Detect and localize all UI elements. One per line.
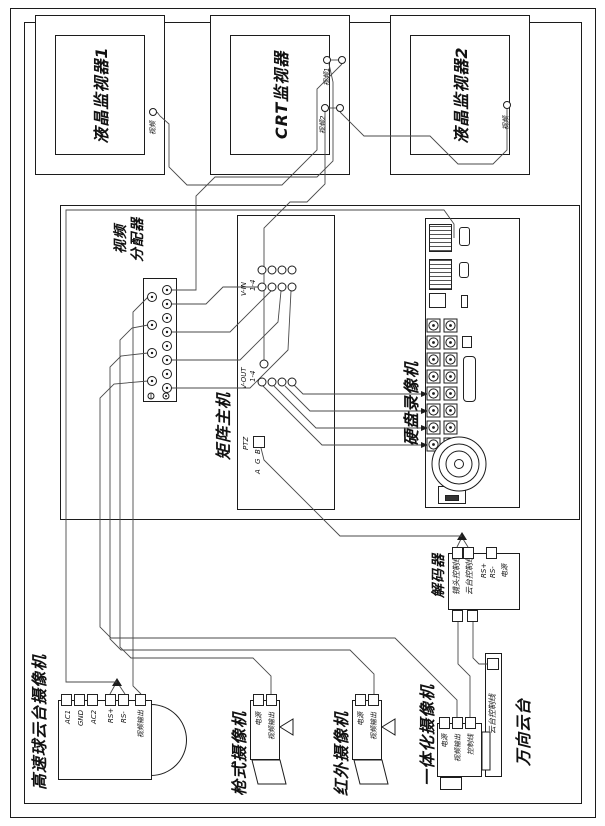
matrix-vout-bnc-group [258,360,296,386]
distributor-input-bnc-group [148,293,157,386]
wire-ballcam-rs485-to-dvr [66,210,454,682]
wire-distributor-to-crt-video1 [171,64,333,290]
gun-camera-lens-icon [252,719,293,784]
wire-intcam-control [458,622,470,717]
monitor-port-connectors [150,57,511,116]
wire-matrix-vout-to-dvr-1 [263,386,423,445]
wire-matrix-vout-to-crt-video2 [264,112,325,360]
wire-decoder-rs-stub2 [463,539,468,547]
wire-ballcam-video [133,297,148,694]
wire-matrix-vout-to-dvr-4 [294,385,423,394]
wire-matrix-vout-to-dvr-2 [274,386,423,428]
distributor-output-bnc-group [163,286,172,393]
wire-intcam-video [100,381,457,717]
wire-guncam-video [120,325,271,694]
wire-ballcam-rs-stub2 [119,685,125,694]
wire-distributor-to-matrix-vin-2 [171,291,271,332]
cctv-wiring-diagram: { "diagram": { "monitors": [ {"name": "液… [0,0,605,826]
distributor-power-terminals [148,393,169,399]
wire-pantilt-control [473,622,487,664]
integrated-camera-mount [482,732,490,770]
wire-decoder-rs-stub1 [457,539,461,547]
wiring-layer [0,0,605,826]
wire-crt-video2-to-lcd2 [340,109,507,164]
diagram-stage: 液晶监视器1 视频 CRT监视器 视频1 视频2 液晶监视器2 视频 视频 分配… [0,0,605,826]
dvr-fan [432,437,486,491]
dvr-bnc-grid [427,319,457,451]
wire-crt-video1-to-lcd1 [157,64,342,185]
wire-distributor-to-matrix-vin-3 [171,291,281,360]
wire-matrix-vout-to-dvr-3 [285,386,423,411]
wire-distributor-to-matrix-vin-4 [171,291,291,388]
ir-camera-lens-icon [354,719,395,784]
wire-ircam-video [110,353,374,694]
wire-ballcam-rs-stub1 [110,685,115,694]
